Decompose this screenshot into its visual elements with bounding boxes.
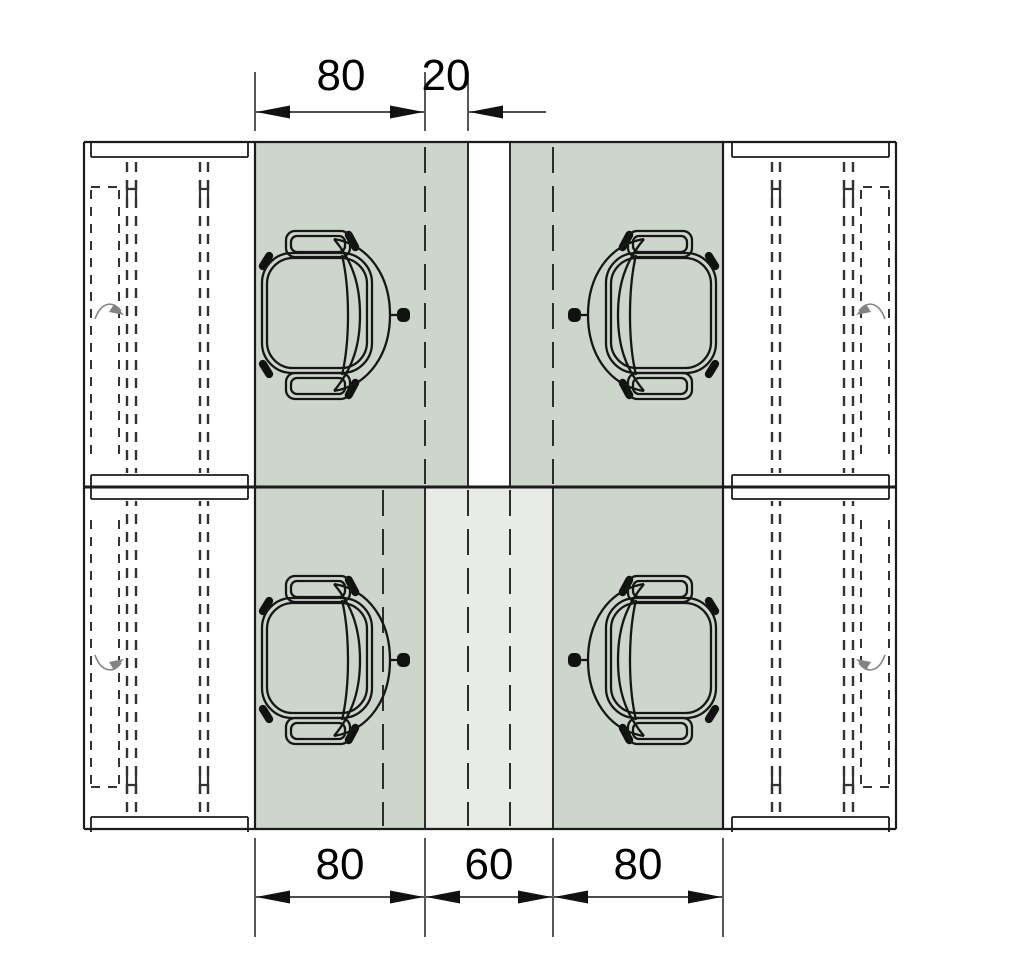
desk-outlines bbox=[84, 142, 896, 829]
desk-top-left bbox=[91, 142, 248, 487]
dim-label-top-20: 20 bbox=[406, 53, 486, 99]
dim-label-bottom-80-right: 80 bbox=[598, 842, 678, 888]
desk-top-right bbox=[732, 142, 889, 487]
chair-top-right bbox=[568, 229, 721, 400]
floor-plan: 80 20 80 60 80 bbox=[0, 0, 1024, 974]
desk-bottom-left bbox=[91, 487, 248, 832]
chair-bottom-right bbox=[568, 574, 721, 745]
chair-bottom-left bbox=[257, 574, 410, 745]
dimension-top bbox=[255, 72, 546, 131]
dim-label-top-80: 80 bbox=[301, 53, 381, 99]
desk-bottom-right bbox=[732, 487, 889, 832]
dim-label-bottom-80-left: 80 bbox=[300, 842, 380, 888]
dim-label-bottom-60: 60 bbox=[449, 842, 529, 888]
chair-top-left bbox=[257, 229, 410, 400]
plan-linework bbox=[0, 0, 1024, 974]
